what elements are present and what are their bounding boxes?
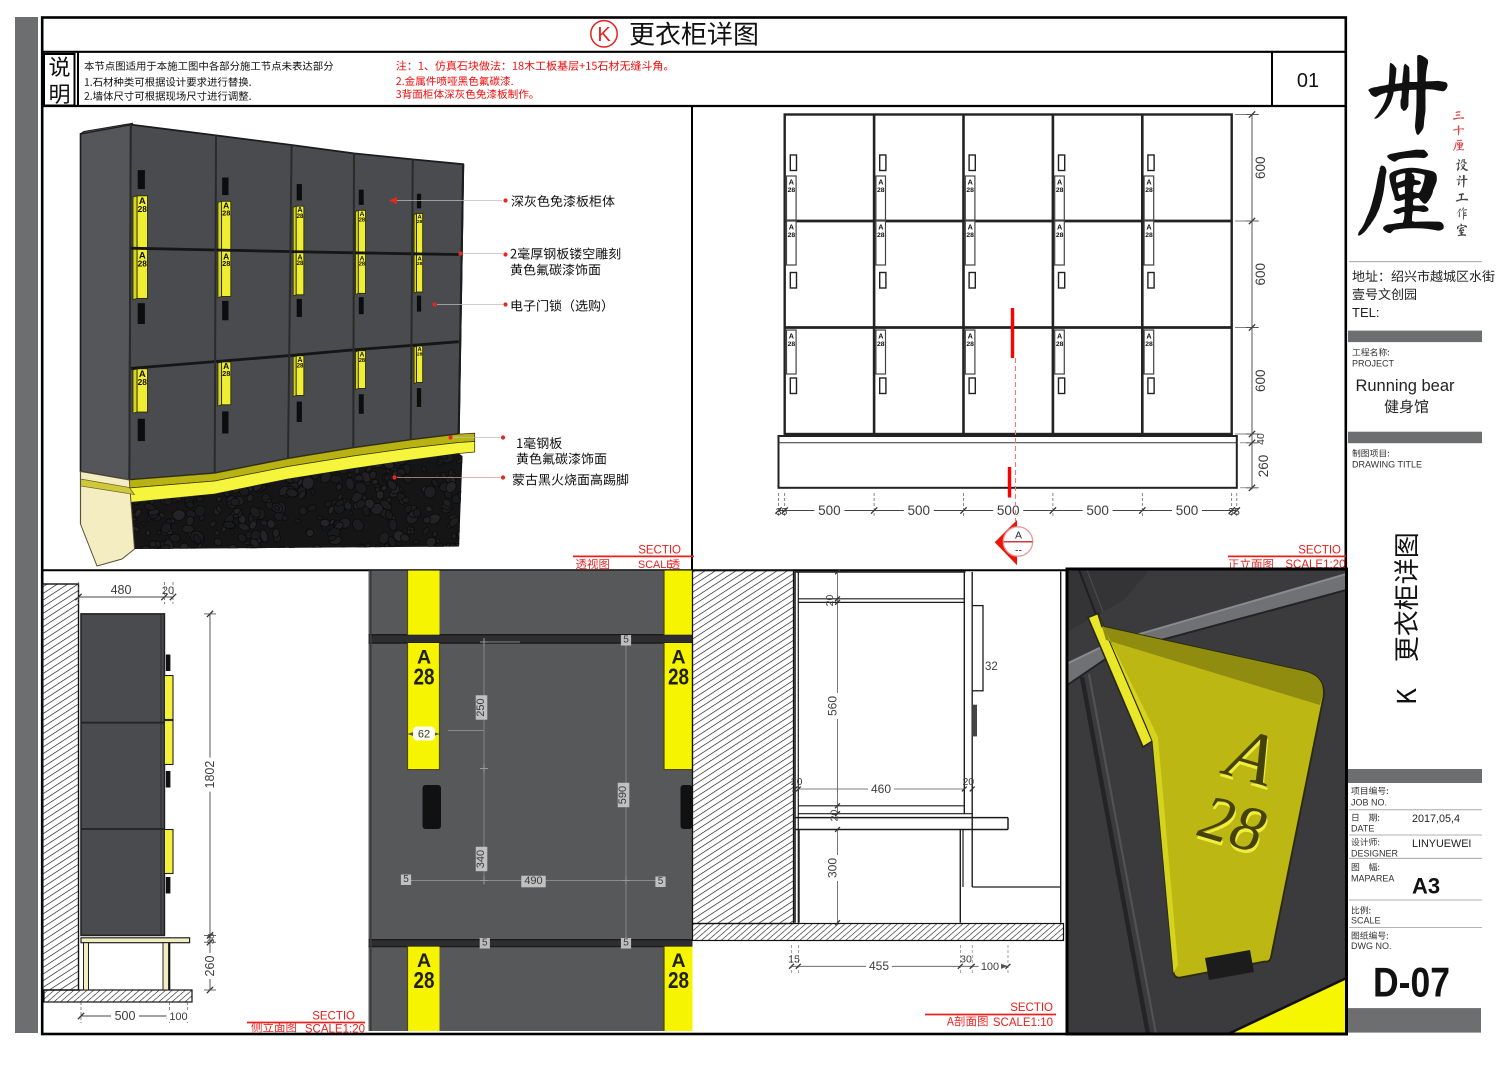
svg-text:32: 32: [985, 661, 998, 673]
svg-text:5: 5: [482, 938, 488, 949]
svg-text:A: A: [878, 223, 883, 232]
svg-text:500: 500: [1176, 503, 1199, 518]
svg-text:01: 01: [1297, 70, 1319, 92]
svg-text:SECTIO: SECTIO: [312, 1011, 355, 1023]
svg-text:A: A: [789, 332, 794, 341]
svg-text:260: 260: [203, 956, 217, 977]
svg-text:340: 340: [475, 850, 487, 868]
svg-text:DRAWING TITLE: DRAWING TITLE: [1352, 460, 1422, 470]
svg-text:600: 600: [1253, 263, 1268, 286]
svg-text:28: 28: [1145, 232, 1153, 239]
svg-text:480: 480: [111, 583, 132, 597]
svg-text:460: 460: [871, 782, 891, 796]
svg-text:28: 28: [1056, 232, 1064, 239]
svg-text:28: 28: [877, 232, 885, 239]
svg-text:100: 100: [981, 961, 999, 973]
svg-text:MAPAREA: MAPAREA: [1351, 873, 1394, 883]
svg-text:A: A: [1146, 223, 1151, 232]
svg-text:500: 500: [115, 1009, 136, 1023]
svg-text:28: 28: [297, 363, 304, 370]
svg-text:A: A: [878, 178, 883, 187]
svg-text:28: 28: [359, 217, 366, 223]
svg-text:A: A: [1015, 530, 1022, 542]
svg-text:500: 500: [997, 503, 1020, 518]
svg-text:28: 28: [1145, 187, 1153, 194]
svg-text:15: 15: [788, 954, 800, 966]
svg-text:A: A: [789, 178, 794, 187]
svg-text:28: 28: [138, 258, 148, 268]
svg-text:500: 500: [908, 503, 931, 518]
svg-text:28: 28: [668, 664, 689, 690]
svg-text:100: 100: [169, 1011, 187, 1023]
svg-text:SCALE1:20: SCALE1:20: [305, 1024, 365, 1036]
svg-text:LINYUEWEI: LINYUEWEI: [1412, 838, 1471, 850]
svg-text:28: 28: [414, 664, 435, 690]
svg-text:40: 40: [1255, 433, 1267, 445]
svg-text:28: 28: [222, 208, 230, 217]
svg-text:28: 28: [1056, 187, 1064, 194]
svg-text:5: 5: [403, 874, 409, 885]
svg-text:28: 28: [966, 232, 974, 239]
svg-text:28: 28: [668, 967, 689, 993]
svg-text:28: 28: [138, 377, 148, 387]
svg-text:600: 600: [1253, 156, 1268, 179]
svg-text:SECTIO: SECTIO: [1010, 1002, 1053, 1014]
svg-text:28: 28: [414, 967, 435, 993]
svg-text:5: 5: [658, 876, 664, 887]
svg-text:A: A: [1057, 332, 1062, 341]
svg-text:28: 28: [966, 187, 974, 194]
svg-text:SECTIO: SECTIO: [638, 545, 681, 557]
svg-text:A: A: [968, 178, 973, 187]
svg-text:28: 28: [297, 213, 304, 220]
svg-text:Running bear: Running bear: [1355, 377, 1455, 395]
svg-text:590: 590: [617, 786, 629, 804]
svg-text:A: A: [1146, 178, 1151, 187]
svg-text:5: 5: [623, 938, 629, 949]
svg-text:TEL:: TEL:: [1352, 305, 1379, 320]
svg-text:28: 28: [788, 341, 796, 348]
svg-text:A: A: [1057, 178, 1062, 187]
svg-text:28: 28: [417, 261, 423, 267]
svg-text:SECTIO: SECTIO: [1298, 545, 1341, 557]
svg-text:20: 20: [829, 810, 841, 822]
svg-text:35: 35: [1228, 506, 1240, 518]
svg-text:560: 560: [826, 696, 840, 716]
svg-text:28: 28: [297, 260, 304, 267]
svg-text:A: A: [878, 332, 883, 341]
svg-text:20: 20: [824, 595, 836, 607]
svg-text:28: 28: [788, 187, 796, 194]
svg-text:28: 28: [788, 232, 796, 239]
svg-text:28: 28: [222, 369, 230, 378]
svg-text:28: 28: [417, 351, 423, 357]
svg-text:20: 20: [162, 585, 174, 597]
svg-text:28: 28: [359, 358, 366, 364]
svg-text:300: 300: [826, 858, 840, 878]
svg-text:1802: 1802: [203, 761, 217, 789]
svg-text:28: 28: [877, 341, 885, 348]
svg-text:28: 28: [417, 219, 423, 225]
svg-text:DATE: DATE: [1351, 824, 1374, 834]
svg-text:62: 62: [418, 729, 430, 741]
svg-text:K: K: [597, 24, 611, 46]
svg-text:A: A: [1057, 223, 1062, 232]
svg-text:250: 250: [475, 698, 487, 716]
svg-text:260: 260: [1256, 455, 1271, 478]
svg-text:A: A: [968, 332, 973, 341]
svg-text:600: 600: [1253, 369, 1268, 392]
svg-text:38: 38: [206, 934, 217, 945]
svg-text:20: 20: [962, 776, 974, 788]
svg-text:DESIGNER: DESIGNER: [1351, 848, 1399, 858]
svg-text:28: 28: [359, 262, 366, 268]
svg-text:35: 35: [776, 506, 788, 518]
svg-text:2017,05,4: 2017,05,4: [1412, 813, 1460, 825]
svg-text:A: A: [789, 223, 794, 232]
svg-text:SCALE1:10: SCALE1:10: [993, 1017, 1053, 1029]
svg-text:490: 490: [524, 875, 542, 887]
svg-text:A3: A3: [1412, 874, 1440, 899]
svg-text:A: A: [968, 223, 973, 232]
svg-text:DWG NO.: DWG NO.: [1351, 941, 1392, 951]
svg-text:28: 28: [222, 259, 230, 268]
svg-text:5: 5: [623, 635, 629, 646]
svg-text:28: 28: [138, 204, 148, 214]
svg-text:SCALE: SCALE: [638, 559, 673, 571]
svg-text:28: 28: [877, 187, 885, 194]
svg-text:30: 30: [960, 954, 972, 966]
svg-text:PROJECT: PROJECT: [1352, 359, 1395, 369]
svg-text:D-07: D-07: [1373, 959, 1450, 1006]
svg-text:SCALE: SCALE: [1351, 916, 1381, 926]
svg-text:28: 28: [1056, 341, 1064, 348]
svg-text:28: 28: [1145, 341, 1153, 348]
svg-text:20: 20: [791, 776, 803, 788]
svg-text:455: 455: [869, 959, 889, 973]
svg-text:--: --: [1015, 545, 1022, 557]
svg-text:500: 500: [1086, 503, 1109, 518]
svg-text:A: A: [1146, 332, 1151, 341]
svg-text:28: 28: [966, 341, 974, 348]
svg-text:500: 500: [818, 503, 841, 518]
svg-text:JOB NO.: JOB NO.: [1351, 797, 1387, 807]
